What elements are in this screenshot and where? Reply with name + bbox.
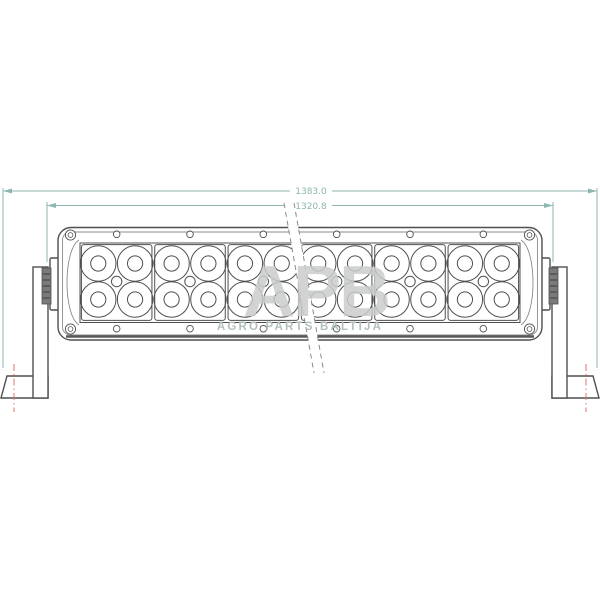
arrowhead-left (47, 203, 56, 208)
watermark-caption: AGRO PARTS BALTIJA (217, 321, 383, 333)
led-light-bar-drawing: 1383.0 1320.8 (0, 0, 600, 600)
flange-screw-top (113, 231, 120, 238)
watermark: APB AGRO PARTS BALTIJA (217, 252, 389, 333)
flange-screw-top (333, 231, 340, 238)
flange-screw-top (480, 231, 487, 238)
flange-screw-top (187, 231, 194, 238)
flange-screw-top (407, 231, 414, 238)
corner-screw (65, 230, 75, 240)
inner-length-label: 1320.8 (295, 202, 327, 212)
arrowhead-left (3, 189, 12, 194)
watermark-logo: APB (243, 252, 389, 332)
flange-screw-bottom (480, 325, 487, 332)
flange-screw-top (260, 231, 267, 238)
corner-screw (524, 324, 534, 334)
corner-screw (524, 230, 534, 240)
mounting-bracket-left (1, 267, 48, 412)
product-technical-drawing: 1383.0 1320.8 (0, 0, 600, 600)
flange-screw-bottom (407, 325, 414, 332)
flange-screw-bottom (113, 325, 120, 332)
arrowhead-right (588, 189, 597, 194)
mounting-bracket-right (552, 267, 599, 412)
corner-screw (65, 324, 75, 334)
overall-length-label: 1383.0 (295, 187, 327, 197)
flange-screw-bottom (187, 325, 194, 332)
arrowhead-right (544, 203, 553, 208)
